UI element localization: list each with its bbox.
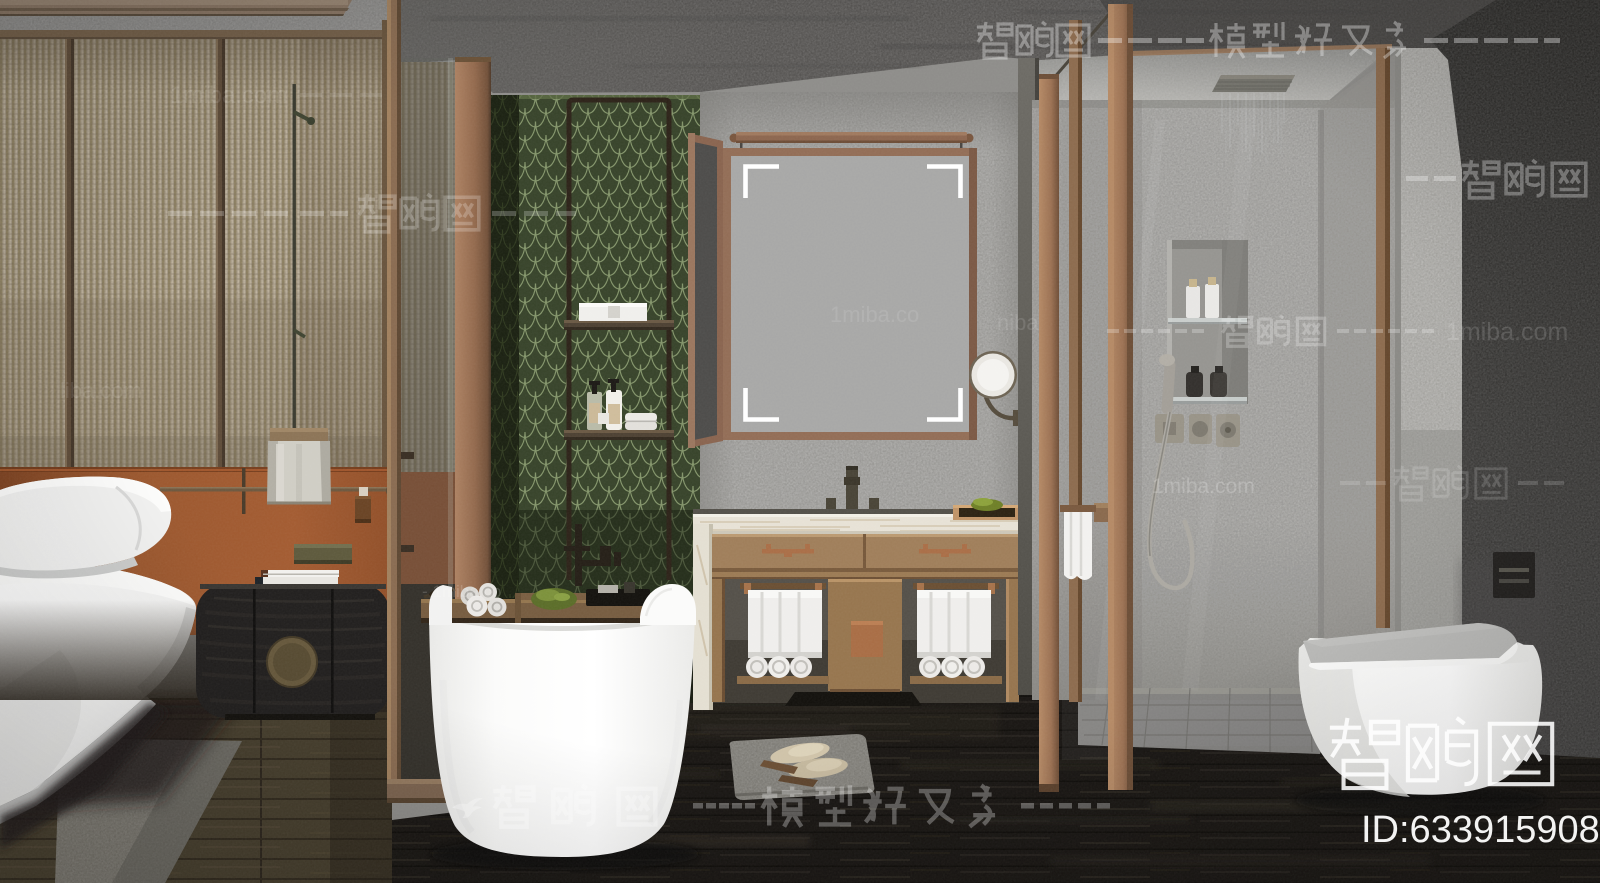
svg-text:liba.com: liba.com bbox=[60, 378, 142, 403]
svg-text:1miba.com: 1miba.com bbox=[170, 82, 287, 109]
svg-text:- 1miba.co: - 1miba.co bbox=[422, 582, 501, 601]
svg-text:niba: niba bbox=[997, 310, 1039, 335]
svg-text:ID:633915908: ID:633915908 bbox=[1361, 809, 1600, 851]
svg-text:1miba.com: 1miba.com bbox=[1152, 475, 1255, 498]
svg-text:1miba.com: 1miba.com bbox=[1446, 318, 1568, 346]
svg-text:1miba.co: 1miba.co bbox=[830, 302, 919, 327]
